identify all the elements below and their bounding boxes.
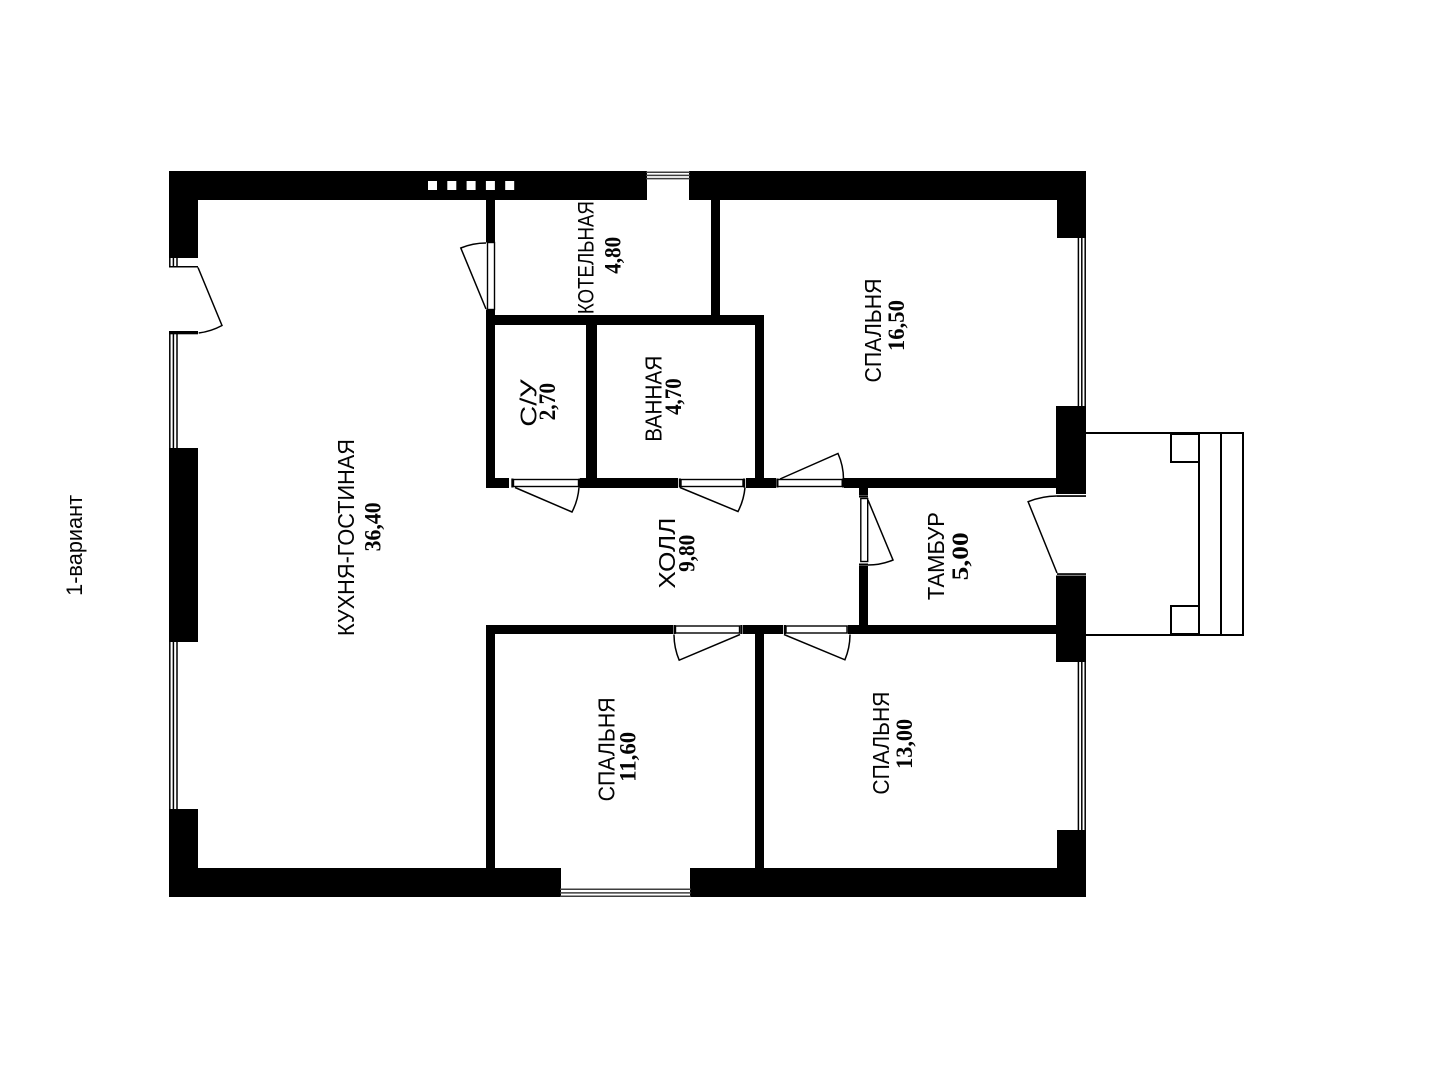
svg-text:КУХНЯ-ГОСТИНАЯ: КУХНЯ-ГОСТИНАЯ bbox=[333, 439, 359, 636]
svg-text:1-вариант: 1-вариант bbox=[62, 495, 87, 596]
svg-text:СПАЛЬНЯ: СПАЛЬНЯ bbox=[860, 279, 886, 383]
svg-text:4,70: 4,70 bbox=[661, 378, 686, 415]
svg-text:36,40: 36,40 bbox=[361, 502, 386, 551]
svg-text:СПАЛЬНЯ: СПАЛЬНЯ bbox=[868, 692, 894, 795]
svg-text:9,80: 9,80 bbox=[675, 535, 700, 572]
svg-text:ТАМБУР: ТАМБУР bbox=[923, 512, 949, 600]
svg-text:4,80: 4,80 bbox=[601, 237, 626, 274]
svg-text:16,50: 16,50 bbox=[884, 300, 909, 351]
svg-text:13,00: 13,00 bbox=[892, 719, 917, 769]
svg-text:2,70: 2,70 bbox=[535, 383, 560, 420]
svg-text:5,00: 5,00 bbox=[948, 532, 973, 580]
svg-text:11,60: 11,60 bbox=[615, 732, 640, 782]
svg-text:КОТЕЛЬНАЯ: КОТЕЛЬНАЯ bbox=[574, 201, 599, 314]
